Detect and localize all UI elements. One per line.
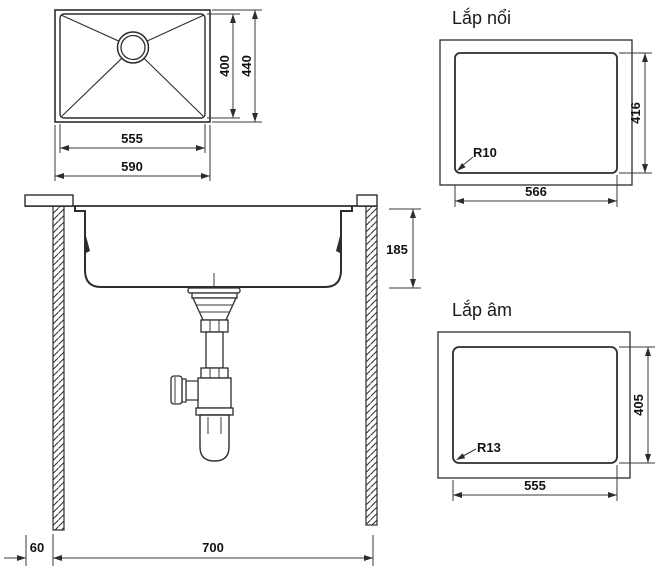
arrowhead	[453, 492, 462, 498]
cutout-outer-rect	[438, 332, 630, 478]
radius-label: R13	[477, 440, 501, 455]
weld-mark-right	[336, 236, 340, 253]
dim-left-offset: 60	[4, 534, 53, 566]
dim-label: 405	[631, 394, 646, 416]
dim-inner-height: 400	[207, 14, 240, 118]
arrowhead	[55, 173, 64, 179]
countertop-left	[25, 195, 73, 206]
trap-ring	[196, 408, 233, 415]
drain-flange	[188, 288, 240, 293]
view-title: Lắp âm	[452, 299, 512, 320]
surface-mount-view: Lắp nổi 416 566 R10	[440, 7, 652, 207]
arrowhead	[60, 145, 69, 151]
dim-label: 60	[30, 540, 44, 555]
dim-label: 416	[628, 102, 643, 124]
arrowhead	[201, 173, 210, 179]
dim-label: 400	[217, 55, 232, 77]
tailpipe	[206, 332, 223, 368]
dim-cutout-height: 416	[619, 53, 652, 173]
dim-cutout-width: 566	[455, 175, 617, 207]
dim-label: 566	[525, 184, 547, 199]
arrowhead	[642, 53, 648, 62]
dim-inner-width: 555	[60, 124, 205, 153]
tailpiece-cone	[193, 298, 236, 320]
radius-label: R10	[473, 145, 497, 160]
bowl-diagonals	[61, 15, 204, 117]
countertop-right	[357, 195, 377, 206]
plan-view: 555 590 400 440	[55, 10, 262, 181]
cabinet-wall-right-hatch	[366, 206, 377, 525]
arrowhead	[608, 492, 617, 498]
flush-mount-view: Lắp âm 405 555 R13	[438, 299, 655, 501]
arrowhead	[455, 198, 464, 204]
arrowhead	[252, 10, 258, 19]
arrowhead	[456, 453, 465, 460]
arrowhead	[230, 14, 236, 23]
arrowhead	[642, 164, 648, 173]
arrowhead	[196, 145, 205, 151]
arrowhead	[53, 555, 62, 561]
sink-bowl-outline	[60, 14, 205, 118]
drain-circle	[118, 32, 149, 63]
arrowhead	[608, 198, 617, 204]
dim-label: 555	[121, 131, 143, 146]
dim-cutout-height: 405	[619, 347, 655, 463]
dim-label: 590	[121, 159, 143, 174]
dim-label: 555	[524, 478, 546, 493]
drain-flange-lower	[192, 293, 237, 298]
arrowhead	[410, 209, 416, 218]
sink-technical-drawing: 555 590 400 440	[0, 0, 665, 571]
dim-cabinet-width: 700	[53, 535, 373, 566]
radius-callout-r13: R13	[456, 440, 501, 460]
arrowhead	[410, 279, 416, 288]
dim-label: 185	[386, 242, 408, 257]
dim-label: 440	[239, 55, 254, 77]
dim-cutout-width: 555	[453, 465, 617, 501]
trap-outlet	[186, 381, 198, 400]
view-title: Lắp nổi	[452, 7, 511, 28]
arrowhead	[17, 555, 26, 561]
drain-trap	[171, 273, 240, 461]
arrowhead	[645, 347, 651, 356]
arrowhead	[252, 113, 258, 122]
radius-callout-r10: R10	[457, 145, 497, 171]
trap-body	[198, 378, 231, 408]
cabinet-wall-left-hatch	[53, 206, 64, 530]
arrowhead	[645, 454, 651, 463]
arrowhead	[230, 109, 236, 118]
sink-outer-outline	[55, 10, 210, 122]
outlet-nut	[171, 376, 182, 404]
arrowhead	[364, 555, 373, 561]
cutout-outer-rect	[440, 40, 632, 185]
dim-label: 700	[202, 540, 224, 555]
tailpiece-nut	[201, 320, 228, 332]
trap-nut	[201, 368, 228, 378]
trap-cup	[200, 415, 229, 461]
section-view: 185 60 700	[4, 195, 421, 566]
weld-mark-left	[86, 236, 90, 253]
dim-bowl-depth: 185	[386, 209, 421, 288]
